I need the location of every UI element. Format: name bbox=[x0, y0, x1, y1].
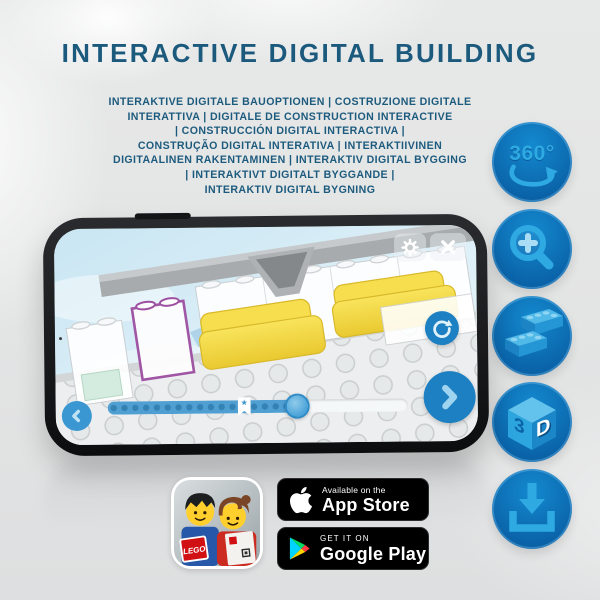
phone-screen: ★ bbox=[54, 225, 478, 445]
google-play-badge[interactable]: GET IT ON Google Play bbox=[277, 527, 429, 570]
3d-cube-icon bbox=[493, 383, 571, 461]
smartphone: ★ bbox=[43, 214, 489, 457]
feature-3d-view-icon: 3 D bbox=[492, 382, 572, 462]
rotate-view-button[interactable] bbox=[425, 311, 459, 345]
subtitle-line: INTERAKTIVE DIGITALE BAUOPTIONEN | COSTR… bbox=[70, 95, 510, 110]
page-title: INTERACTIVE DIGITAL BUILDING bbox=[0, 38, 600, 69]
google-play-name: Google Play bbox=[320, 544, 426, 564]
settings-button[interactable] bbox=[394, 233, 426, 261]
google-play-tagline: GET IT ON bbox=[320, 534, 426, 544]
subtitle-line: INTERAKTIV DIGITAL BYGNING bbox=[70, 183, 510, 198]
download-arrow-icon bbox=[493, 470, 571, 548]
app-store-badge[interactable]: Available on the App Store bbox=[277, 478, 429, 521]
phone-side-button bbox=[135, 213, 191, 220]
rotate-arrow-icon bbox=[504, 164, 560, 188]
previous-step-button[interactable] bbox=[62, 401, 92, 431]
subtitle-line: INTERATTIVA | DIGITALE DE CONSTRUCTION I… bbox=[70, 110, 510, 125]
next-icon bbox=[437, 382, 463, 412]
gear-icon bbox=[400, 237, 420, 257]
slider-thumb[interactable] bbox=[285, 394, 310, 419]
product-feature-image: INTERACTIVE DIGITAL BUILDING INTERAKTIVE… bbox=[0, 0, 600, 600]
lego-building-app-icon[interactable]: LEGO bbox=[171, 477, 263, 569]
app-store-tagline: Available on the bbox=[322, 485, 410, 495]
google-play-icon bbox=[289, 536, 311, 561]
multilanguage-subtitle: INTERAKTIVE DIGITALE BAUOPTIONEN | COSTR… bbox=[70, 95, 510, 197]
rotate-360-label: 360° bbox=[509, 144, 554, 164]
feature-bricks-icon bbox=[492, 296, 572, 376]
close-button[interactable] bbox=[430, 233, 466, 261]
lego-app-artwork: LEGO bbox=[174, 480, 260, 566]
lego-bricks-icon bbox=[493, 297, 571, 375]
back-icon bbox=[68, 407, 86, 425]
magnifier-plus-icon bbox=[502, 219, 562, 279]
subtitle-line: | CONSTRUCCIÓN DIGITAL INTERACTIVA | bbox=[70, 124, 510, 139]
feature-download-icon bbox=[492, 469, 572, 549]
apple-icon bbox=[289, 485, 313, 515]
phone-camera-dot bbox=[59, 337, 62, 340]
cube-side-label: 3 bbox=[514, 414, 525, 441]
subtitle-line: | INTERAKTIVT DIGITALT BYGGANDE | bbox=[70, 168, 510, 183]
next-step-button[interactable] bbox=[423, 371, 476, 424]
close-icon bbox=[439, 238, 457, 256]
rotate-icon bbox=[431, 317, 453, 339]
subtitle-line: DIGITAALINEN RAKENTAMINEN | INTERAKTIV D… bbox=[70, 153, 510, 168]
feature-zoom-icon bbox=[492, 209, 572, 289]
app-store-name: App Store bbox=[322, 495, 410, 515]
slider-fill bbox=[108, 400, 298, 415]
feature-rotate-360-icon: 360° bbox=[492, 122, 572, 202]
subtitle-line: CONSTRUÇÃO DIGITAL INTERATIVA | INTERAKT… bbox=[70, 139, 510, 154]
